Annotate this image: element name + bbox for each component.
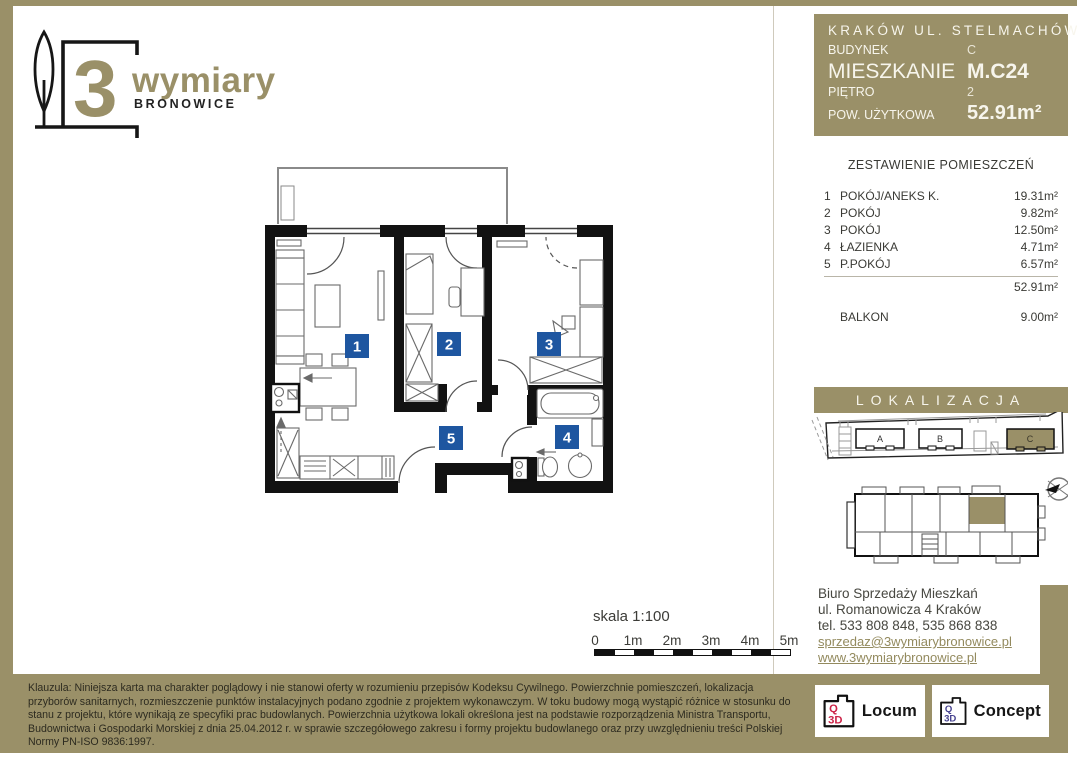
balcony-area: 9.00m²	[1021, 309, 1058, 326]
rooms-table-title: ZESTAWIENIE POMIESZCZEŃ	[824, 158, 1058, 172]
apartment-label: MIESZKANIE	[828, 59, 967, 84]
building-b: B	[919, 429, 962, 450]
contact-phone: tel. 533 808 848, 535 868 838	[818, 618, 1054, 634]
floor-overview	[847, 486, 1045, 563]
floor-value: 2	[967, 84, 974, 101]
table-row: 1 POKÓJ/ANEKS K. 19.31m²	[824, 188, 1058, 205]
highlighted-unit	[969, 497, 1005, 524]
svg-text:3D: 3D	[828, 715, 842, 727]
total-area: 52.91m²	[824, 279, 1058, 296]
compass-icon	[1045, 478, 1068, 500]
badge-room-3: 3	[537, 332, 561, 356]
contact-email-link[interactable]: sprzedaz@3wymiarybronowice.pl	[818, 634, 1012, 650]
svg-text:2: 2	[445, 337, 453, 354]
table-row: 2 POKÓJ 9.82m²	[824, 205, 1058, 222]
contact-www-link[interactable]: www.3wymiarybronowice.pl	[818, 650, 977, 666]
partner-logo-locum: Q 3D Locum	[815, 685, 925, 737]
project-address: KRAKÓW UL. STELMACHÓW	[828, 22, 1058, 40]
balcony-label: BALKON	[840, 309, 1021, 326]
floor-plan: 1 2 3 4 5	[0, 0, 806, 690]
legal-disclaimer: Klauzula: Niniejsza karta ma charakter p…	[28, 682, 792, 750]
scale-ticks: 0 1m 2m 3m 4m 5m	[593, 633, 793, 649]
svg-text:4: 4	[563, 430, 572, 447]
localization-map: A B C	[810, 412, 1068, 574]
svg-text:1: 1	[353, 339, 361, 356]
scale-caption: skala 1:100	[593, 608, 793, 625]
q3d-mark-icon: Q 3D	[821, 690, 857, 732]
badge-room-4: 4	[555, 425, 579, 449]
balcony-row: BALKON 9.00m²	[824, 309, 1058, 326]
rooms-table: ZESTAWIENIE POMIESZCZEŃ 1 POKÓJ/ANEKS K.…	[814, 148, 1068, 326]
building-value: C	[967, 42, 976, 59]
svg-text:A: A	[877, 434, 883, 444]
partner-label: Locum	[862, 702, 917, 721]
site-buildings: A B C	[856, 429, 1054, 451]
balcony-outline	[278, 168, 507, 224]
svg-text:Q: Q	[829, 703, 838, 715]
table-divider	[824, 276, 1058, 277]
q3d-mark-icon: Q 3D	[938, 690, 969, 732]
header-block: KRAKÓW UL. STELMACHÓW BUDYNEK C MIESZKAN…	[814, 14, 1068, 136]
usable-area-label: POW. UŻYTKOWA	[828, 103, 967, 128]
badge-room-1: 1	[345, 334, 369, 358]
building-a: A	[856, 429, 904, 450]
svg-text:C: C	[1027, 434, 1034, 444]
apartment-number: M.C24	[967, 59, 1029, 84]
contact-block: Biuro Sprzedaży Mieszkań ul. Romanowicza…	[818, 586, 1054, 666]
svg-text:B: B	[937, 434, 943, 444]
scale-bar: skala 1:100 0 1m 2m 3m 4m 5m	[593, 608, 793, 656]
svg-text:3: 3	[545, 337, 553, 354]
building-c-highlighted: C	[1007, 429, 1054, 451]
table-row: 3 POKÓJ 12.50m²	[824, 222, 1058, 239]
usable-area-value: 52.91m²	[967, 101, 1042, 126]
furniture	[271, 240, 603, 480]
partner-label: Concept	[974, 702, 1041, 721]
contact-address: ul. Romanowicza 4 Kraków	[818, 602, 1054, 618]
flat-card-page: 3 wymiary BRONOWICE	[0, 0, 1077, 768]
contact-office: Biuro Sprzedaży Mieszkań	[818, 586, 1054, 602]
svg-text:3D: 3D	[944, 714, 956, 725]
building-label: BUDYNEK	[828, 42, 967, 59]
svg-text:5: 5	[447, 431, 455, 448]
partner-logo-concept: Q 3D Concept	[932, 685, 1049, 737]
scale-segments	[594, 649, 791, 656]
badge-room-2: 2	[437, 332, 461, 356]
table-row: 5 P.POKÓJ 6.57m²	[824, 256, 1058, 273]
floor-label: PIĘTRO	[828, 84, 967, 101]
right-olive-band	[1040, 585, 1068, 674]
table-row: 4 ŁAZIENKA 4.71m²	[824, 239, 1058, 256]
localization-banner: LOKALIZACJA	[814, 387, 1068, 413]
badge-room-5: 5	[439, 426, 463, 450]
